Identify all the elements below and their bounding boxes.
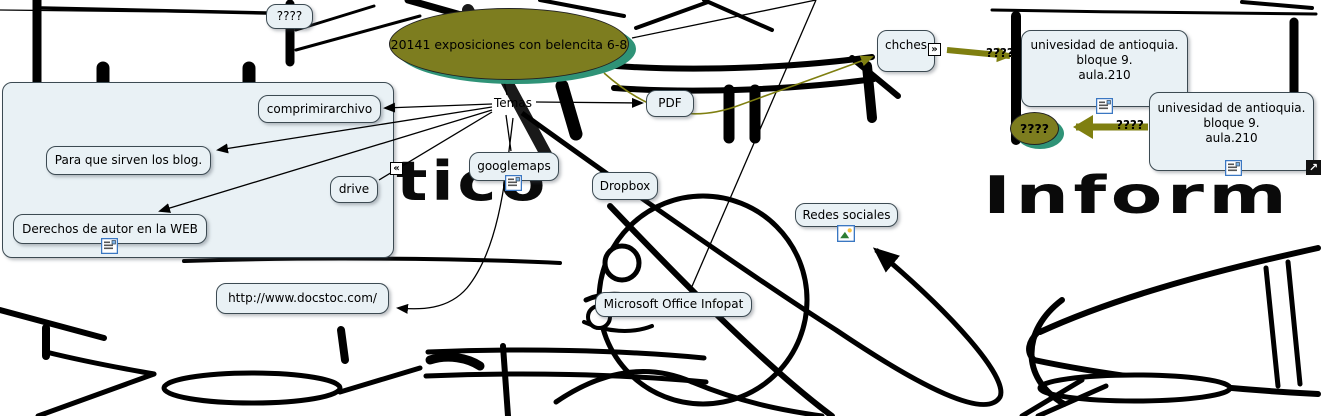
concept-dropbox[interactable]: Dropbox <box>592 172 658 200</box>
concept-label: comprimirarchivo <box>267 102 372 117</box>
concept-label-line2: bloque 9. <box>1203 116 1259 131</box>
link-label-univ2-unknown[interactable]: ???? <box>1116 118 1144 132</box>
linking-phrase-temas[interactable]: Temas <box>494 96 532 110</box>
concept-para-que-sirven-los-blog[interactable]: Para que sirven los blog. <box>46 146 211 175</box>
collapse-right-icon[interactable]: » <box>928 43 941 56</box>
concept-label: Dropbox <box>600 179 651 194</box>
link-label-chches-univ1[interactable]: ???? <box>986 46 1014 60</box>
concept-label: drive <box>339 182 369 197</box>
concept-label: Redes sociales <box>802 208 890 223</box>
collapse-left-icon[interactable]: « <box>390 162 403 175</box>
concept-drive[interactable]: drive <box>330 176 378 203</box>
concept-label: Microsoft Office Infopat <box>604 297 744 312</box>
open-new-icon[interactable]: ↗ <box>1306 160 1321 175</box>
document-resource-icon[interactable] <box>1225 160 1242 176</box>
concept-label: PDF <box>658 96 681 111</box>
concept-label-line3: aula.210 <box>1078 68 1130 83</box>
main-topic-ellipse[interactable]: 20141 exposiciones con belencita 6-8 <box>389 8 629 80</box>
concept-label: googlemaps <box>477 159 551 174</box>
concept-label: Derechos de autor en la WEB <box>22 222 198 237</box>
concept-label: chches <box>885 38 927 53</box>
concept-label: Para que sirven los blog. <box>55 153 202 168</box>
main-topic-label: 20141 exposiciones con belencita 6-8 <box>391 37 628 52</box>
collapse-right-glyph: » <box>931 45 937 55</box>
concept-chches[interactable]: chches <box>877 30 935 72</box>
concept-microsoft-office-infopat[interactable]: Microsoft Office Infopat <box>595 292 752 317</box>
document-resource-icon[interactable] <box>505 175 522 191</box>
concept-label-line3: aula.210 <box>1205 131 1257 146</box>
concept-label-line2: bloque 9. <box>1076 53 1132 68</box>
concept-label-line1: univesidad de antioquia. <box>1158 101 1306 116</box>
concept-unknown-top[interactable]: ???? <box>266 4 313 29</box>
concept-label: http://www.docstoc.com/ <box>228 291 377 306</box>
concept-pdf[interactable]: PDF <box>646 90 694 117</box>
concept-docstoc-url[interactable]: http://www.docstoc.com/ <box>216 283 389 314</box>
concept-map-canvas: tico Inform <box>0 0 1323 416</box>
document-resource-icon[interactable] <box>1096 98 1113 114</box>
image-resource-icon[interactable] <box>837 225 855 242</box>
concept-label-line1: univesidad de antioquia. <box>1031 38 1179 53</box>
concept-unknown-ellipse[interactable]: ???? <box>1010 112 1059 145</box>
open-new-glyph: ↗ <box>1309 162 1318 173</box>
collapse-left-glyph: « <box>393 164 399 174</box>
concept-redes-sociales[interactable]: Redes sociales <box>795 203 898 227</box>
concept-comprimirarchivo[interactable]: comprimirarchivo <box>258 95 381 123</box>
concept-label: ???? <box>277 9 302 24</box>
document-resource-icon[interactable] <box>101 238 118 254</box>
concept-label: ???? <box>1020 121 1049 136</box>
